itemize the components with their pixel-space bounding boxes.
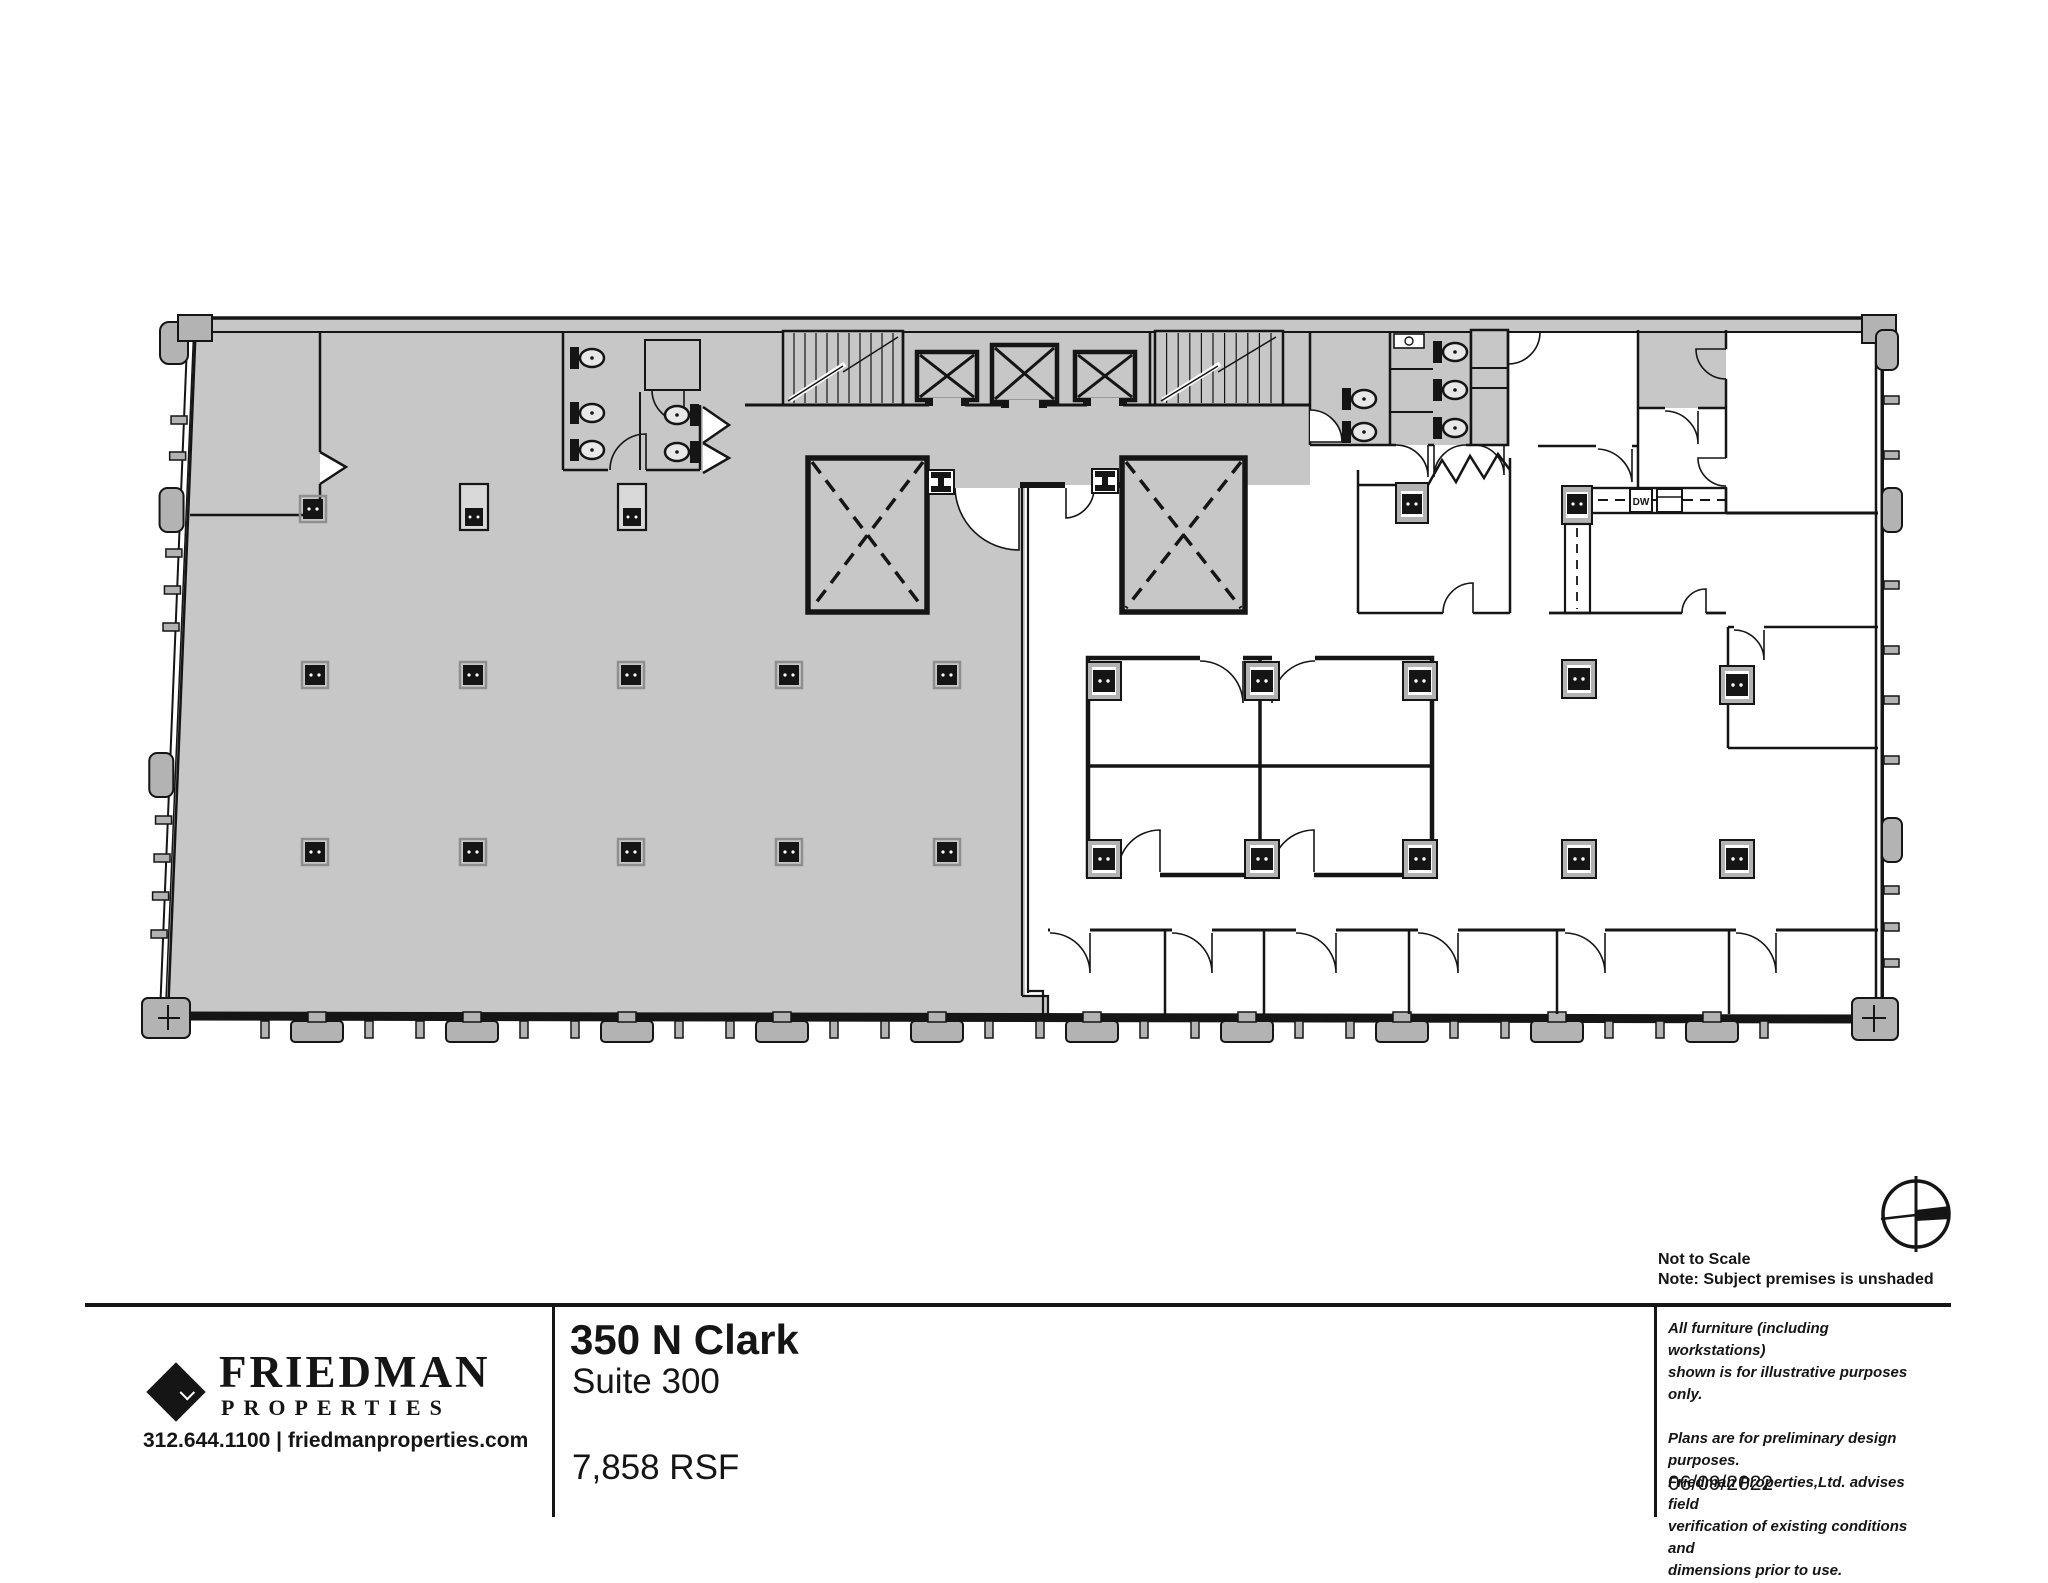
scale-note: Not to Scale Note: Subject premises is u… bbox=[1658, 1250, 1934, 1290]
logo-name: FRIEDMAN bbox=[219, 1353, 490, 1391]
window-box-column bbox=[460, 484, 488, 530]
disclaimer-note: Plans are for preliminary design purpose… bbox=[1668, 1428, 1928, 1472]
elevator-shaft bbox=[992, 345, 1057, 411]
flyer-sheet: DW bbox=[0, 0, 2048, 1583]
rentable-area: 7,858 RSF bbox=[572, 1448, 739, 1488]
elevator-shaft bbox=[1075, 352, 1135, 409]
furniture-note: All furniture (including workstations) bbox=[1668, 1318, 1928, 1362]
light-well-left bbox=[808, 458, 927, 612]
suite-number: Suite 300 bbox=[572, 1362, 720, 1402]
title-block-rule bbox=[85, 1303, 1951, 1307]
window-box-column bbox=[618, 484, 646, 530]
property-title: 350 N Clark bbox=[570, 1316, 799, 1364]
scale-note-line1: Not to Scale bbox=[1658, 1250, 1934, 1270]
title-block-divider bbox=[1654, 1305, 1657, 1517]
disclaimer-note: dimensions prior to use. bbox=[1668, 1560, 1928, 1582]
light-well-right bbox=[1122, 458, 1245, 612]
disclaimer-note: verification of existing conditions and bbox=[1668, 1516, 1928, 1560]
i-beam-column bbox=[928, 470, 954, 494]
plan-date: 06/09/2022 bbox=[1668, 1472, 1773, 1496]
scale-note-line2: Note: Subject premises is unshaded bbox=[1658, 1270, 1934, 1290]
furniture-note: shown is for illustrative purposes only. bbox=[1668, 1362, 1928, 1406]
dishwasher-label: DW bbox=[1633, 497, 1650, 508]
elevator-shaft bbox=[917, 352, 977, 409]
title-block-divider bbox=[552, 1305, 555, 1517]
stairwell-right bbox=[1155, 331, 1283, 405]
contact-info: 312.644.1100 | friedmanproperties.com bbox=[143, 1429, 528, 1453]
stairwell-left bbox=[783, 331, 903, 405]
disclaimer-notes: All furniture (including workstations) s… bbox=[1668, 1318, 1928, 1583]
i-beam-column bbox=[1092, 469, 1118, 493]
north-arrow-icon bbox=[1881, 1176, 1950, 1252]
logo-subtitle: PROPERTIES bbox=[221, 1395, 451, 1421]
